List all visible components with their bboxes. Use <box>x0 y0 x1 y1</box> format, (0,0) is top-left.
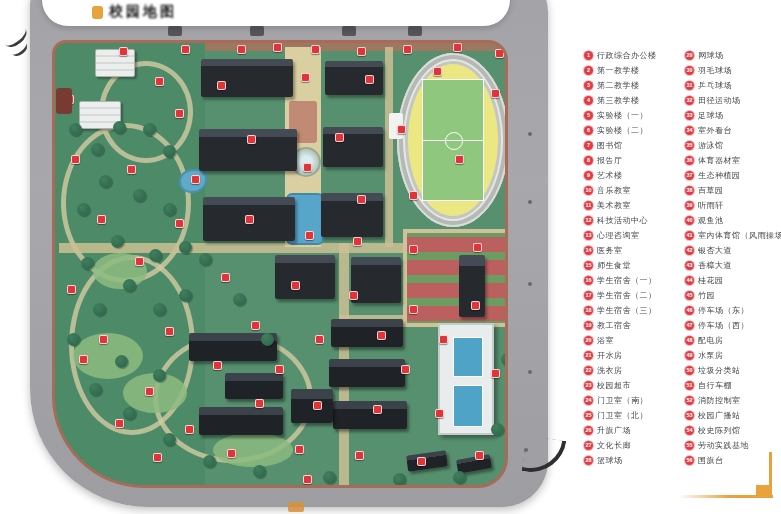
dormitory-building <box>333 401 407 429</box>
map-location-marker-icon <box>349 291 358 300</box>
legend-marker-icon: 37 <box>685 171 694 180</box>
map-location-marker-icon <box>127 165 136 174</box>
map-location-marker-icon <box>409 305 418 314</box>
white-roof-building <box>95 49 135 77</box>
legend-item: 39听雨轩 <box>685 200 780 211</box>
campus-boundary <box>52 40 508 488</box>
legend-item: 27文化长廊 <box>584 440 679 451</box>
map-location-marker-icon <box>357 195 366 204</box>
legend-label: 学生宿舍（一） <box>597 275 657 286</box>
legend-item: 56国旗台 <box>685 455 780 466</box>
legend-item: 6实验楼（二） <box>584 125 679 136</box>
legend-marker-icon: 52 <box>685 396 694 405</box>
gate-post-icon <box>250 26 264 36</box>
west-gate-canopy <box>56 88 72 114</box>
legend-item: 31乒乓球场 <box>685 80 780 91</box>
legend-item: 15师生食堂 <box>584 260 679 271</box>
legend-item: 36体育器材室 <box>685 155 780 166</box>
legend-label: 心理咨询室 <box>597 230 640 241</box>
legend-item: 11美术教室 <box>584 200 679 211</box>
dormitory-building <box>291 389 333 423</box>
gate-post-icon <box>168 26 182 36</box>
legend-item: 50垃圾分类站 <box>685 365 780 376</box>
tree-icon <box>491 423 504 436</box>
legend-label: 校园超市 <box>597 380 631 391</box>
legend-label: 学生宿舍（三） <box>597 305 657 316</box>
title-banner: 校园地图 <box>42 0 510 26</box>
legend-label: 听雨轩 <box>698 200 724 211</box>
banner-logo-row: 校园地图 <box>92 3 177 21</box>
legend-item: 55劳动实践基地 <box>685 440 780 451</box>
legend-marker-icon: 31 <box>685 81 694 90</box>
legend-label: 体育器材室 <box>698 155 741 166</box>
map-location-marker-icon <box>175 219 184 228</box>
legend-marker-icon: 56 <box>685 456 694 465</box>
tree-icon <box>143 123 156 136</box>
legend-label: 停车场（西） <box>698 320 749 331</box>
service-building <box>406 450 448 471</box>
map-location-marker-icon <box>365 75 374 84</box>
legend-marker-icon: 53 <box>685 411 694 420</box>
tree-icon <box>323 471 336 484</box>
legend-label: 第二教学楼 <box>597 80 640 91</box>
library-building <box>275 255 335 299</box>
legend-label: 科技活动中心 <box>597 215 648 226</box>
legend-marker-icon: 46 <box>685 306 694 315</box>
map-location-marker-icon <box>373 405 382 414</box>
legend-marker-icon: 55 <box>685 441 694 450</box>
legend-marker-icon: 16 <box>584 276 593 285</box>
legend-item: 2第一教学楼 <box>584 65 679 76</box>
map-location-marker-icon <box>227 449 236 458</box>
legend: 1行政综合办公楼2第一教学楼3第二教学楼4第三教学楼5实验楼（一）6实验楼（二）… <box>584 50 780 466</box>
legend-item: 49水泵房 <box>685 350 780 361</box>
teaching-building <box>321 193 383 237</box>
map-location-marker-icon <box>153 453 162 462</box>
tree-icon <box>67 333 80 346</box>
legend-label: 消防控制室 <box>698 395 741 406</box>
map-location-marker-icon <box>155 77 164 86</box>
legend-label: 停车场（东） <box>698 305 749 316</box>
school-logo-icon <box>92 6 103 19</box>
map-location-marker-icon <box>397 125 406 134</box>
map-location-marker-icon <box>247 135 256 144</box>
map-location-marker-icon <box>255 399 264 408</box>
legend-item: 12科技活动中心 <box>584 215 679 226</box>
legend-marker-icon: 21 <box>584 351 593 360</box>
legend-marker-icon: 38 <box>685 186 694 195</box>
legend-marker-icon: 54 <box>685 426 694 435</box>
legend-item: 8报告厅 <box>584 155 679 166</box>
map-location-marker-icon <box>403 45 412 54</box>
gate-post-icon <box>342 26 356 36</box>
swimming-pool <box>453 385 483 427</box>
campus-road <box>385 47 393 247</box>
tree-icon <box>111 235 124 248</box>
map-canvas <box>0 0 560 514</box>
dormitory-building <box>329 359 405 387</box>
legend-marker-icon: 48 <box>685 336 694 345</box>
legend-label: 乒乓球场 <box>698 80 732 91</box>
legend-marker-icon: 9 <box>584 171 593 180</box>
tree-icon <box>163 145 176 158</box>
legend-label: 开水房 <box>597 350 623 361</box>
legend-label: 行政综合办公楼 <box>597 50 657 61</box>
map-location-marker-icon <box>245 215 254 224</box>
legend-marker-icon: 42 <box>685 246 694 255</box>
legend-label: 图书馆 <box>597 140 623 151</box>
legend-marker-icon: 11 <box>584 201 593 210</box>
teaching-building <box>325 61 383 95</box>
tree-icon <box>261 333 274 346</box>
legend-marker-icon: 3 <box>584 81 593 90</box>
map-location-marker-icon <box>353 237 362 246</box>
legend-item: 44桂花园 <box>685 275 780 286</box>
legend-item: 25门卫室（北） <box>584 410 679 421</box>
map-location-marker-icon <box>213 361 222 370</box>
legend-label: 羽毛球场 <box>698 65 732 76</box>
legend-item: 53校园广播站 <box>685 410 780 421</box>
running-track-stadium <box>397 53 508 227</box>
map-location-marker-icon <box>275 365 284 374</box>
legend-column-2: 29网球场30羽毛球场31乒乓球场32田径运动场33足球场34室外看台35游泳馆… <box>685 50 780 466</box>
legend-item: 28篮球场 <box>584 455 679 466</box>
tree-icon <box>115 355 128 368</box>
legend-marker-icon: 50 <box>685 366 694 375</box>
legend-label: 校史陈列馆 <box>698 425 741 436</box>
legend-item: 30羽毛球场 <box>685 65 780 76</box>
tree-icon <box>203 455 216 468</box>
map-location-marker-icon <box>491 89 500 98</box>
legend-label: 学生宿舍（二） <box>597 290 657 301</box>
legend-item: 20浴室 <box>584 335 679 346</box>
legend-marker-icon: 6 <box>584 126 593 135</box>
legend-label: 香樟大道 <box>698 260 732 271</box>
streetlight-icon <box>528 370 532 374</box>
legend-marker-icon: 25 <box>584 411 593 420</box>
legend-label: 游泳馆 <box>698 140 724 151</box>
map-location-marker-icon <box>315 335 324 344</box>
campus-map-page: 校园地图 1行政综合办公楼2第一教学楼3第二教学楼4第三教学楼5实验楼（一）6实… <box>0 0 781 514</box>
legend-item: 43香樟大道 <box>685 260 780 271</box>
legend-item: 19教工宿舍 <box>584 320 679 331</box>
legend-label: 教工宿舍 <box>597 320 631 331</box>
legend-marker-icon: 27 <box>584 441 593 450</box>
map-location-marker-icon <box>295 445 304 454</box>
legend-label: 洗衣房 <box>597 365 623 376</box>
map-location-marker-icon <box>99 335 108 344</box>
legend-item: 42银杏大道 <box>685 245 780 256</box>
legend-label: 竹园 <box>698 290 715 301</box>
map-location-marker-icon <box>181 45 190 54</box>
map-location-marker-icon <box>473 243 482 252</box>
streetlight-icon <box>528 282 532 286</box>
legend-item: 5实验楼（一） <box>584 110 679 121</box>
legend-label: 桂花园 <box>698 275 724 286</box>
legend-marker-icon: 49 <box>685 351 694 360</box>
sports-courts <box>407 233 508 323</box>
legend-item: 22洗衣房 <box>584 365 679 376</box>
tree-icon <box>113 121 126 134</box>
legend-label: 银杏大道 <box>698 245 732 256</box>
legend-item: 29网球场 <box>685 50 780 61</box>
streetlight-icon <box>528 132 532 136</box>
south-gate-icon <box>288 502 304 512</box>
map-location-marker-icon <box>237 45 246 54</box>
legend-marker-icon: 44 <box>685 276 694 285</box>
legend-marker-icon: 1 <box>584 51 593 60</box>
legend-marker-icon: 41 <box>685 231 694 240</box>
lawn-patch <box>213 433 293 467</box>
legend-label: 室内体育馆（风雨操场） <box>698 230 781 241</box>
legend-marker-icon: 18 <box>584 306 593 315</box>
tree-icon <box>123 279 136 292</box>
legend-marker-icon: 33 <box>685 111 694 120</box>
legend-marker-icon: 15 <box>584 261 593 270</box>
legend-item: 34室外看台 <box>685 125 780 136</box>
map-location-marker-icon <box>377 331 386 340</box>
legend-marker-icon: 12 <box>584 216 593 225</box>
legend-label: 第一教学楼 <box>597 65 640 76</box>
tree-icon <box>179 289 192 302</box>
legend-label: 田径运动场 <box>698 95 741 106</box>
streetlight-icon <box>528 200 532 204</box>
hall-building <box>351 257 401 303</box>
map-location-marker-icon <box>115 419 124 428</box>
swimming-pool <box>453 337 483 377</box>
tree-icon <box>199 253 212 266</box>
map-location-marker-icon <box>145 387 154 396</box>
legend-item: 16学生宿舍（一） <box>584 275 679 286</box>
dormitory-building <box>199 407 283 435</box>
map-location-marker-icon <box>175 109 184 118</box>
legend-marker-icon: 4 <box>584 96 593 105</box>
legend-label: 浴室 <box>597 335 614 346</box>
map-location-marker-icon <box>291 281 300 290</box>
legend-label: 实验楼（二） <box>597 125 648 136</box>
legend-label: 生态种植园 <box>698 170 741 181</box>
gold-corner-square <box>756 485 771 497</box>
legend-label: 劳动实践基地 <box>698 440 749 451</box>
legend-item: 32田径运动场 <box>685 95 780 106</box>
legend-label: 校园广播站 <box>698 410 741 421</box>
legend-label: 配电房 <box>698 335 724 346</box>
legend-marker-icon: 13 <box>584 231 593 240</box>
legend-label: 音乐教室 <box>597 185 631 196</box>
map-location-marker-icon <box>335 133 344 142</box>
dormitory-building <box>225 373 283 399</box>
legend-label: 门卫室（南） <box>597 395 648 406</box>
tree-icon <box>153 303 166 316</box>
tree-icon <box>99 175 112 188</box>
legend-label: 网球场 <box>698 50 724 61</box>
map-location-marker-icon <box>135 257 144 266</box>
teaching-building <box>201 59 293 97</box>
tree-icon <box>149 249 162 262</box>
tree-icon <box>91 143 104 156</box>
legend-item: 21开水房 <box>584 350 679 361</box>
map-location-marker-icon <box>165 327 174 336</box>
map-location-marker-icon <box>251 321 260 330</box>
legend-marker-icon: 34 <box>685 126 694 135</box>
tree-icon <box>77 203 90 216</box>
map-location-marker-icon <box>491 369 500 378</box>
map-location-marker-icon <box>495 49 504 58</box>
legend-marker-icon: 40 <box>685 216 694 225</box>
legend-label: 报告厅 <box>597 155 623 166</box>
map-location-marker-icon <box>357 47 366 56</box>
legend-label: 百草园 <box>698 185 724 196</box>
map-location-marker-icon <box>221 273 230 282</box>
map-location-marker-icon <box>303 163 312 172</box>
legend-label: 自行车棚 <box>698 380 732 391</box>
legend-label: 观鱼池 <box>698 215 724 226</box>
map-location-marker-icon <box>305 231 314 240</box>
legend-item: 41室内体育馆（风雨操场） <box>685 230 780 241</box>
teaching-building <box>323 127 383 167</box>
legend-item: 51自行车棚 <box>685 380 780 391</box>
tree-icon <box>501 353 508 366</box>
legend-marker-icon: 7 <box>584 141 593 150</box>
legend-item: 1行政综合办公楼 <box>584 50 679 61</box>
legend-marker-icon: 20 <box>584 336 593 345</box>
legend-column-1: 1行政综合办公楼2第一教学楼3第二教学楼4第三教学楼5实验楼（一）6实验楼（二）… <box>584 50 679 466</box>
legend-item: 10音乐教室 <box>584 185 679 196</box>
map-location-marker-icon <box>409 191 418 200</box>
legend-marker-icon: 5 <box>584 111 593 120</box>
legend-marker-icon: 43 <box>685 261 694 270</box>
tree-icon <box>179 241 192 254</box>
tree-icon <box>89 383 102 396</box>
legend-marker-icon: 26 <box>584 426 593 435</box>
legend-label: 实验楼（一） <box>597 110 648 121</box>
legend-item: 47停车场（西） <box>685 320 780 331</box>
legend-item: 52消防控制室 <box>685 395 780 406</box>
map-location-marker-icon <box>119 47 128 56</box>
legend-item: 40观鱼池 <box>685 215 780 226</box>
legend-marker-icon: 51 <box>685 381 694 390</box>
legend-marker-icon: 47 <box>685 321 694 330</box>
tree-icon <box>123 407 136 420</box>
map-location-marker-icon <box>313 401 322 410</box>
map-location-marker-icon <box>439 335 448 344</box>
legend-label: 室外看台 <box>698 125 732 136</box>
soccer-field <box>422 79 484 201</box>
map-location-marker-icon <box>311 45 320 54</box>
legend-marker-icon: 2 <box>584 66 593 75</box>
legend-label: 国旗台 <box>698 455 724 466</box>
legend-label: 艺术楼 <box>597 170 623 181</box>
legend-label: 水泵房 <box>698 350 724 361</box>
map-location-marker-icon <box>185 425 194 434</box>
legend-label: 升旗广场 <box>597 425 631 436</box>
legend-marker-icon: 39 <box>685 201 694 210</box>
map-location-marker-icon <box>217 81 226 90</box>
legend-label: 门卫室（北） <box>597 410 648 421</box>
map-location-marker-icon <box>435 409 444 418</box>
legend-marker-icon: 14 <box>584 246 593 255</box>
legend-marker-icon: 24 <box>584 396 593 405</box>
tree-icon <box>253 465 266 478</box>
legend-item: 3第二教学楼 <box>584 80 679 91</box>
map-location-marker-icon <box>471 301 480 310</box>
legend-marker-icon: 45 <box>685 291 694 300</box>
legend-marker-icon: 22 <box>584 366 593 375</box>
legend-item: 46停车场（东） <box>685 305 780 316</box>
legend-item: 23校园超市 <box>584 380 679 391</box>
legend-label: 第三教学楼 <box>597 95 640 106</box>
legend-item: 38百草园 <box>685 185 780 196</box>
legend-item: 33足球场 <box>685 110 780 121</box>
legend-item: 18学生宿舍（三） <box>584 305 679 316</box>
legend-item: 17学生宿舍（二） <box>584 290 679 301</box>
legend-item: 9艺术楼 <box>584 170 679 181</box>
map-location-marker-icon <box>71 155 80 164</box>
tree-icon <box>153 369 166 382</box>
legend-item: 4第三教学楼 <box>584 95 679 106</box>
legend-item: 24门卫室（南） <box>584 395 679 406</box>
legend-marker-icon: 29 <box>685 51 694 60</box>
legend-label: 足球场 <box>698 110 724 121</box>
legend-marker-icon: 8 <box>584 156 593 165</box>
tree-icon <box>393 473 406 486</box>
map-location-marker-icon <box>401 365 410 374</box>
map-location-marker-icon <box>417 457 426 466</box>
legend-item: 37生态种植园 <box>685 170 780 181</box>
tree-icon <box>163 433 176 446</box>
legend-marker-icon: 32 <box>685 96 694 105</box>
legend-label: 师生食堂 <box>597 260 631 271</box>
legend-label: 垃圾分类站 <box>698 365 741 376</box>
legend-marker-icon: 23 <box>584 381 593 390</box>
map-location-marker-icon <box>67 285 76 294</box>
legend-label: 文化长廊 <box>597 440 631 451</box>
legend-marker-icon: 10 <box>584 186 593 195</box>
map-location-marker-icon <box>79 355 88 364</box>
map-location-marker-icon <box>355 451 364 460</box>
legend-item: 7图书馆 <box>584 140 679 151</box>
legend-item: 45竹园 <box>685 290 780 301</box>
map-location-marker-icon <box>273 43 282 52</box>
tree-icon <box>163 203 176 216</box>
tree-icon <box>453 471 466 484</box>
tree-icon <box>133 189 146 202</box>
legend-marker-icon: 36 <box>685 156 694 165</box>
legend-marker-icon: 19 <box>584 321 593 330</box>
legend-label: 医务室 <box>597 245 623 256</box>
legend-item: 54校史陈列馆 <box>685 425 780 436</box>
map-location-marker-icon <box>97 215 106 224</box>
page-title: 校园地图 <box>109 3 177 21</box>
map-location-marker-icon <box>303 475 312 484</box>
tree-icon <box>81 257 94 270</box>
map-location-marker-icon <box>433 67 442 76</box>
tree-icon <box>93 303 106 316</box>
legend-marker-icon: 30 <box>685 66 694 75</box>
legend-item: 13心理咨询室 <box>584 230 679 241</box>
legend-marker-icon: 28 <box>584 456 593 465</box>
legend-item: 35游泳馆 <box>685 140 780 151</box>
legend-item: 26升旗广场 <box>584 425 679 436</box>
legend-marker-icon: 17 <box>584 291 593 300</box>
gate-post-icon <box>408 26 422 36</box>
map-location-marker-icon <box>455 155 464 164</box>
legend-label: 美术教室 <box>597 200 631 211</box>
tree-icon <box>233 293 246 306</box>
map-location-marker-icon <box>475 451 484 460</box>
map-location-marker-icon <box>191 175 200 184</box>
legend-label: 篮球场 <box>597 455 623 466</box>
